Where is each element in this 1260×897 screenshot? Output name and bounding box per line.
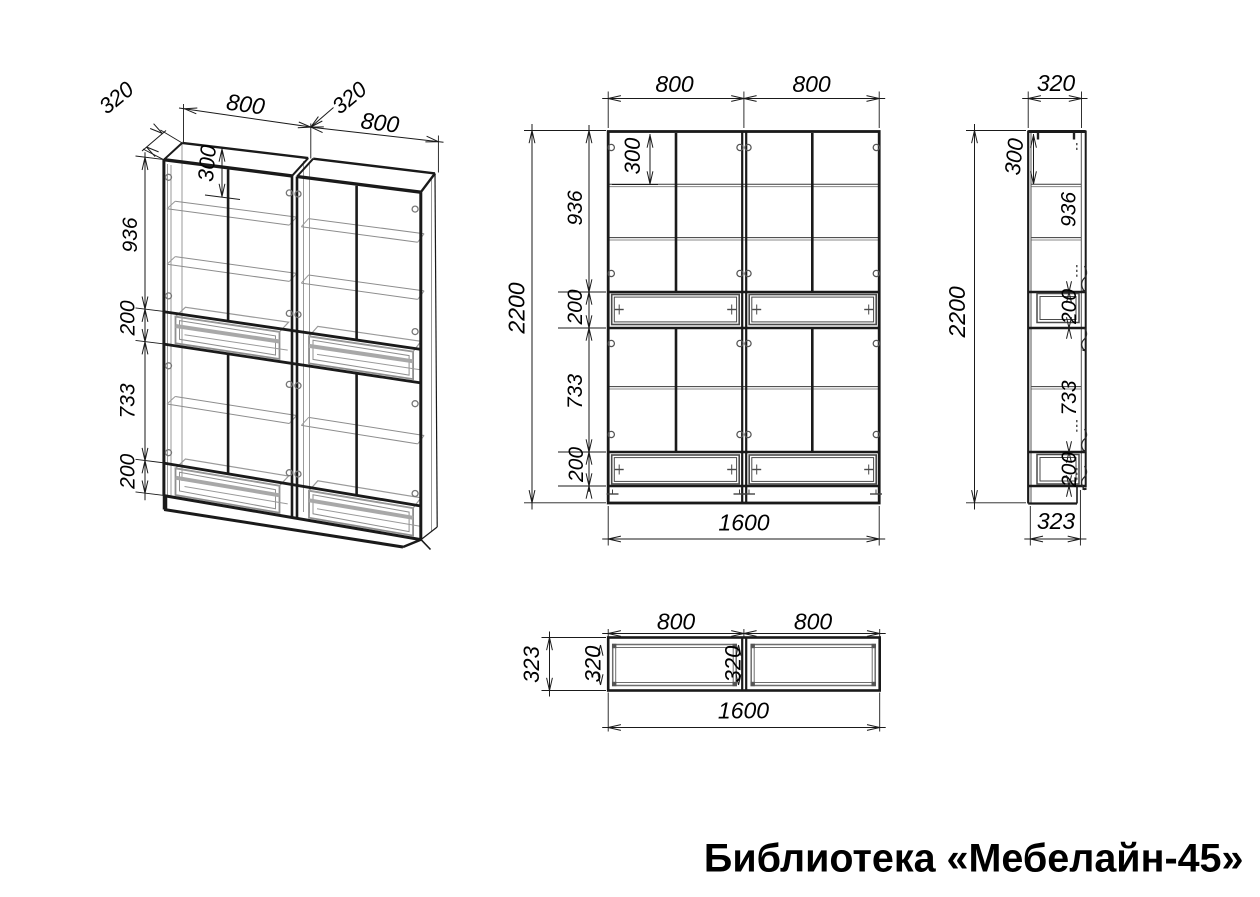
svg-text:1600: 1600 [718, 698, 769, 724]
svg-text:300: 300 [620, 137, 645, 174]
svg-text:200: 200 [117, 453, 140, 489]
svg-text:200: 200 [564, 289, 587, 325]
svg-text:320: 320 [580, 645, 605, 682]
svg-text:320: 320 [1037, 70, 1076, 96]
svg-text:1600: 1600 [718, 510, 769, 536]
svg-text:800: 800 [794, 609, 833, 635]
svg-text:936: 936 [564, 190, 587, 225]
svg-text:936: 936 [1058, 192, 1081, 227]
svg-text:300: 300 [1000, 136, 1029, 176]
svg-text:323: 323 [1037, 508, 1076, 534]
svg-text:200: 200 [1058, 289, 1081, 325]
svg-text:800: 800 [792, 71, 831, 97]
svg-text:733: 733 [117, 383, 140, 418]
svg-text:800: 800 [655, 71, 694, 97]
svg-text:200: 200 [117, 300, 140, 336]
svg-text:800: 800 [225, 89, 267, 120]
svg-text:320: 320 [720, 645, 745, 682]
svg-text:733: 733 [1058, 380, 1081, 415]
svg-text:800: 800 [359, 107, 400, 138]
svg-text:2200: 2200 [503, 282, 529, 334]
svg-text:320: 320 [94, 76, 139, 119]
svg-text:936: 936 [119, 217, 142, 252]
svg-text:733: 733 [564, 374, 587, 409]
svg-text:800: 800 [657, 609, 696, 635]
svg-text:2200: 2200 [944, 286, 970, 338]
svg-text:323: 323 [519, 645, 544, 682]
svg-text:200: 200 [565, 447, 588, 483]
svg-text:Библиотека «Мебелайн-45»: Библиотека «Мебелайн-45» [704, 836, 1244, 880]
svg-text:300: 300 [193, 143, 221, 183]
